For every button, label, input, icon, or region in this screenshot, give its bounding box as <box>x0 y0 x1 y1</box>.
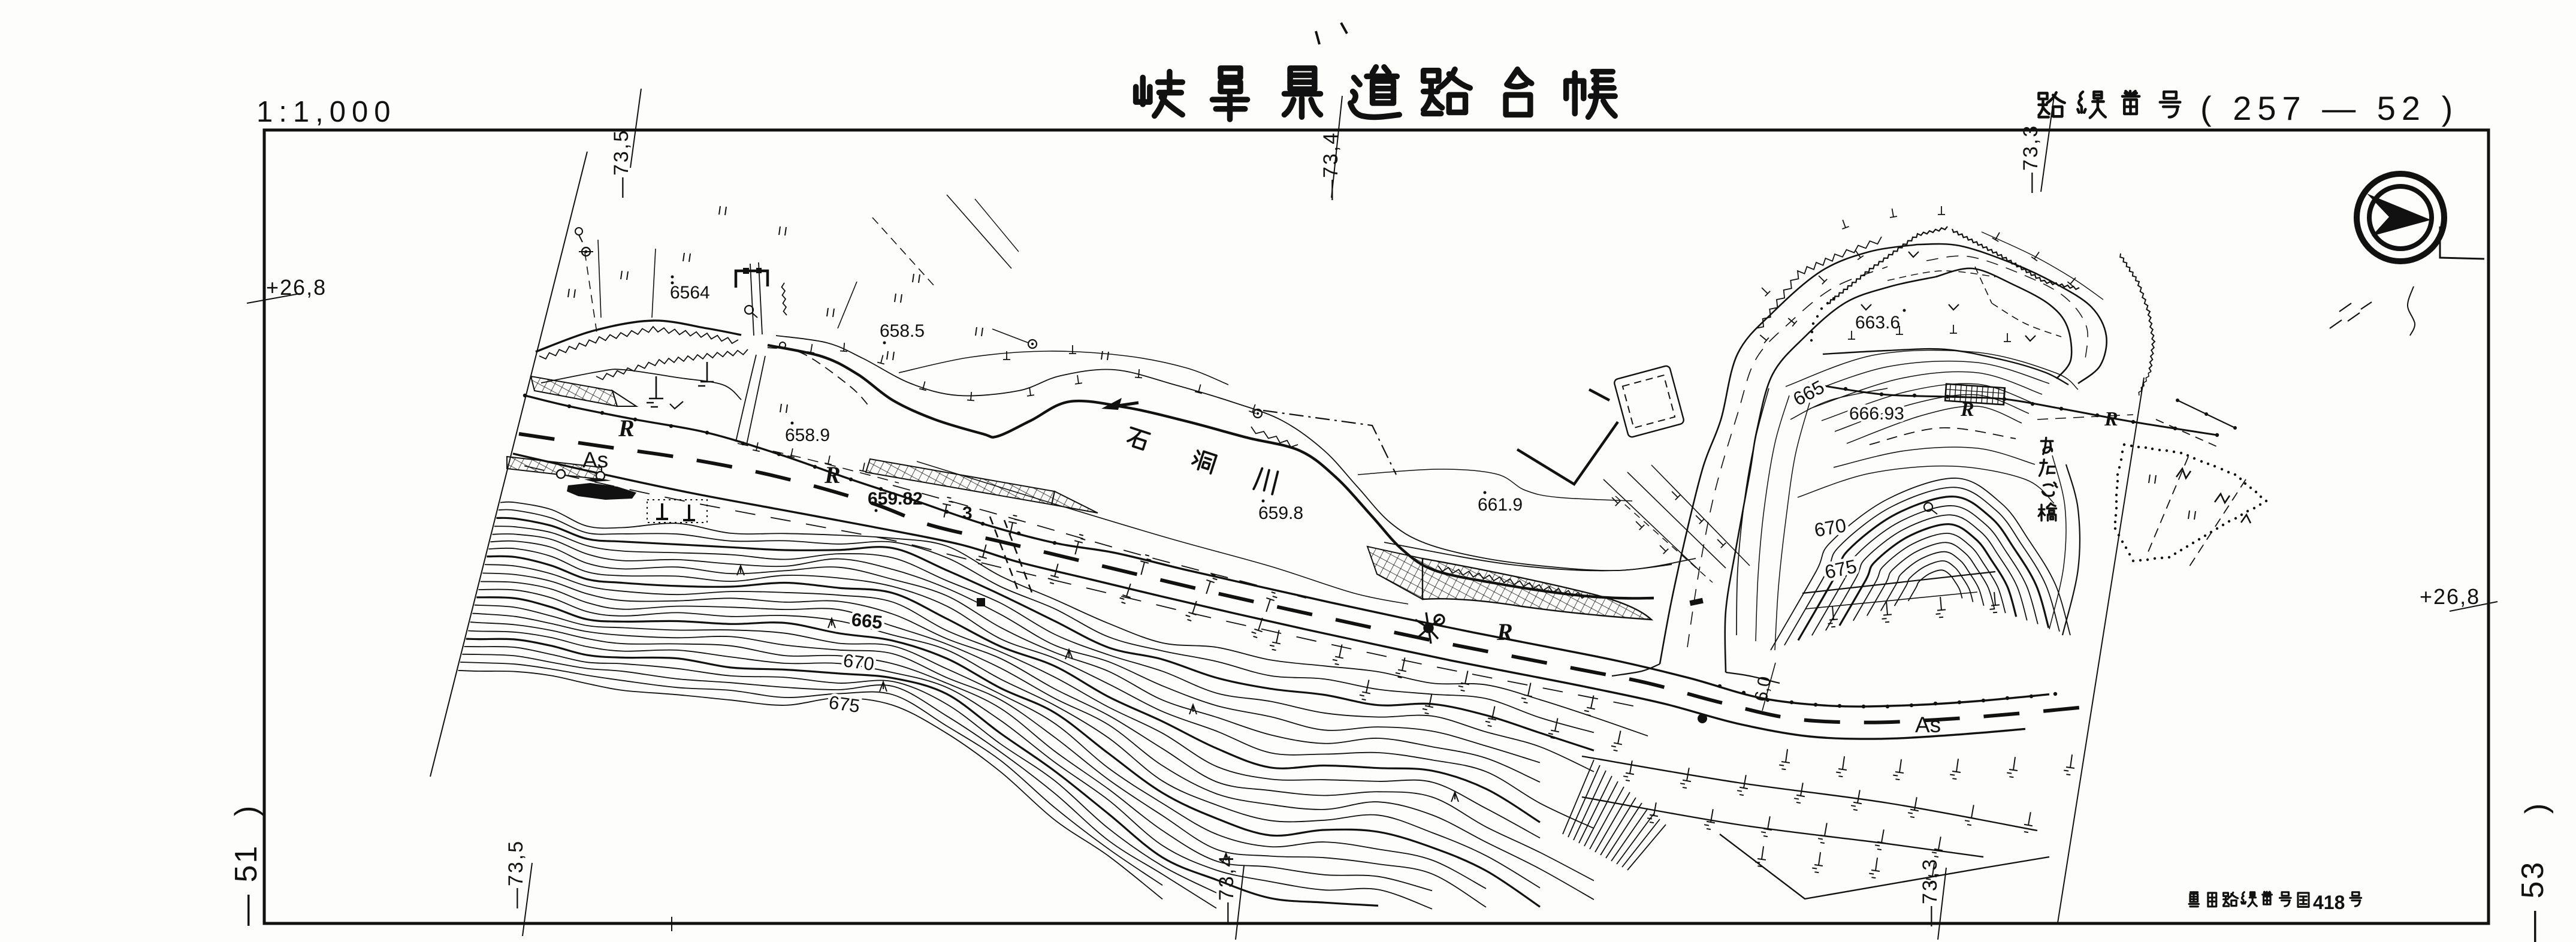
svg-text:+26,8: +26,8 <box>266 275 327 300</box>
svg-text:6564: 6564 <box>670 283 710 303</box>
svg-text:R: R <box>1496 618 1513 645</box>
svg-text:—73,4: —73,4 <box>1319 131 1342 200</box>
svg-text:675: 675 <box>828 692 861 717</box>
svg-text:—73,5: —73,5 <box>610 129 633 198</box>
svg-text:1:1,000: 1:1,000 <box>256 96 397 128</box>
svg-text:663.6: 663.6 <box>1855 313 1900 333</box>
svg-text:R: R <box>618 415 635 442</box>
svg-text:—73,3: —73,3 <box>1919 858 1941 926</box>
svg-text:659.8: 659.8 <box>1258 503 1303 523</box>
svg-text:+26,8: +26,8 <box>2420 584 2480 609</box>
svg-text:As: As <box>1915 712 1941 737</box>
svg-text:): ) <box>229 804 264 816</box>
svg-text:670: 670 <box>842 650 875 675</box>
svg-text:658.5: 658.5 <box>880 321 925 341</box>
svg-text:( 257 — 52 ): ( 257 — 52 ) <box>2200 89 2459 127</box>
svg-text:R: R <box>1960 398 1974 421</box>
svg-text:658.9: 658.9 <box>785 425 830 445</box>
svg-text:659.82: 659.82 <box>868 489 923 509</box>
svg-text:—73,3: —73,3 <box>2019 124 2042 193</box>
svg-text:): ) <box>2519 802 2554 814</box>
svg-text:— 51: — 51 <box>229 844 264 926</box>
svg-text:665: 665 <box>850 609 883 633</box>
svg-text:3: 3 <box>962 503 973 523</box>
svg-text:— 53: — 53 <box>2515 861 2550 942</box>
svg-text:R: R <box>2104 408 2118 430</box>
svg-text:—73,5: —73,5 <box>505 840 527 908</box>
svg-text:661.9: 661.9 <box>1478 495 1523 515</box>
svg-text:666.93: 666.93 <box>1849 404 1904 424</box>
svg-text:418: 418 <box>2313 892 2345 913</box>
